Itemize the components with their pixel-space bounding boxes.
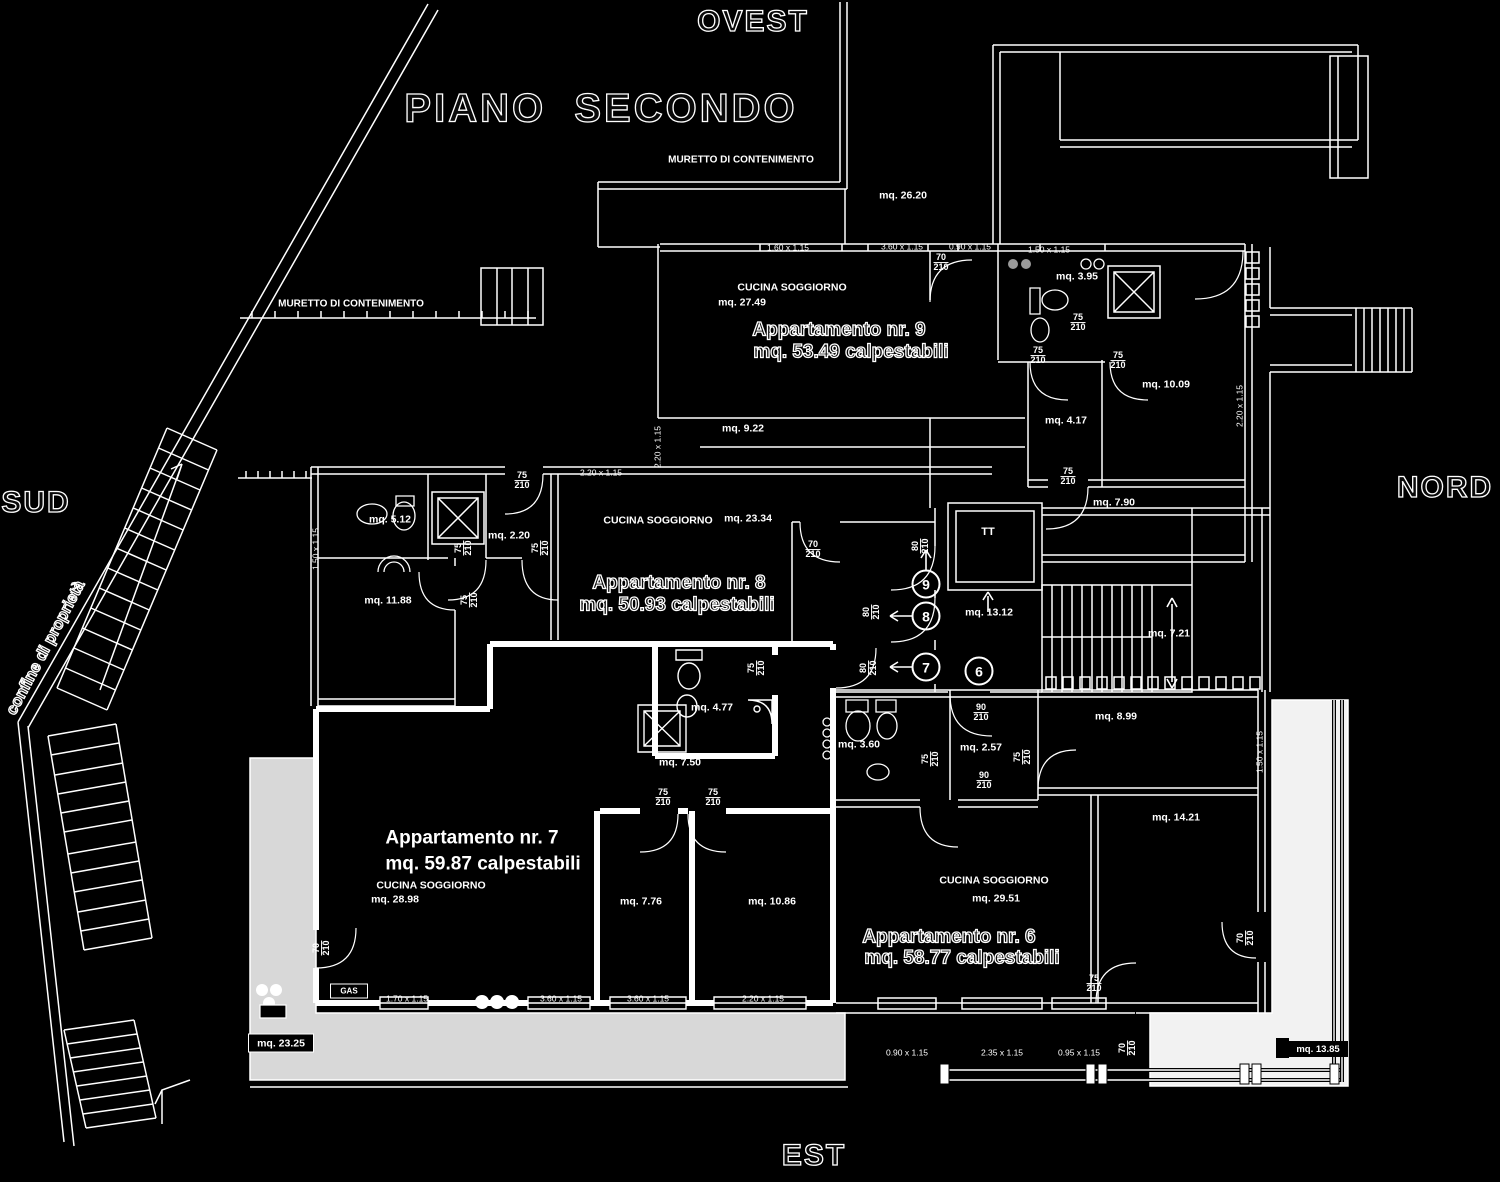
door-height: 210 (973, 714, 988, 723)
window-dimension: 0.90 x 1.15 (886, 1048, 928, 1057)
door-size-label: 75210 (705, 788, 720, 808)
door-size-label: 75210 (1013, 749, 1033, 764)
chip-mq-13-85: mq. 13.85 (1288, 1041, 1348, 1057)
label-mq-58-77-calpestabili: mq. 58.77 calpestabili (864, 949, 1059, 970)
label-mq-14-21: mq. 14.21 (1152, 812, 1200, 823)
window-dimension: 0.90 x 1.15 (949, 242, 991, 251)
door-size-label: 75210 (514, 471, 529, 491)
window-dimension: 2.20 x 1.15 (1235, 385, 1244, 427)
label-mq-4-17: mq. 4.17 (1045, 415, 1087, 426)
label-piano-secondo: PIANO SECONDO (404, 87, 797, 130)
window-dimension: 1.60 x 1.15 (767, 243, 809, 252)
unit-number-6: 6 (965, 657, 994, 686)
unit-number-8: 8 (912, 602, 941, 631)
label-mq-26-20: mq. 26.20 (879, 190, 927, 201)
door-size-label: 80210 (911, 538, 931, 553)
label-mq-9-22: mq. 9.22 (722, 423, 764, 434)
door-size-label: 70210 (312, 940, 332, 955)
door-height: 210 (542, 540, 551, 555)
label-mq-27-49: mq. 27.49 (718, 297, 766, 308)
label-mq-3-60: mq. 3.60 (838, 739, 880, 750)
door-height: 210 (1086, 985, 1101, 994)
window-dimension: 3.60 x 1.15 (627, 994, 669, 1003)
label-mq-7-21: mq. 7.21 (1148, 628, 1190, 639)
door-size-label: 75210 (454, 540, 474, 555)
label-mq-2-20: mq. 2.20 (488, 530, 530, 541)
unit-number-9: 9 (912, 570, 941, 599)
door-height: 210 (705, 799, 720, 808)
door-size-label: 75210 (655, 788, 670, 808)
label-mq-29-51: mq. 29.51 (972, 893, 1020, 904)
label-mq-10-09: mq. 10.09 (1142, 379, 1190, 390)
door-size-label: 75210 (1060, 467, 1075, 487)
label-nord: NORD (1397, 472, 1493, 504)
window-dimension: 2.20 x 1.15 (742, 994, 784, 1003)
chip-gas: GAS (330, 984, 368, 999)
door-size-label: 70210 (933, 253, 948, 273)
window-dimension: 2.20 x 1.15 (653, 426, 662, 468)
door-height: 210 (465, 540, 474, 555)
label-muretto-di-contenimento: MURETTO DI CONTENIMENTO (668, 156, 814, 167)
door-height: 210 (1030, 357, 1045, 366)
shaft-boxes (1108, 266, 1160, 318)
door-height: 210 (805, 551, 820, 560)
label-mq-28-98: mq. 28.98 (371, 894, 419, 905)
door-size-label: 75210 (1070, 313, 1085, 333)
door-size-label: 75210 (1086, 974, 1101, 994)
label-ovest: OVEST (697, 6, 809, 38)
door-height: 210 (323, 940, 332, 955)
door-height: 210 (932, 751, 941, 766)
chip-mq-23-25: mq. 23.25 (248, 1034, 314, 1053)
door-height: 210 (758, 660, 767, 675)
door-size-label: 75210 (747, 660, 767, 675)
door-height: 210 (1070, 324, 1085, 333)
label-mq-23-34: mq. 23.34 (724, 513, 772, 524)
label-cucina-soggiorno: CUCINA SOGGIORNO (376, 880, 485, 891)
door-size-label: 75210 (460, 592, 480, 607)
door-size-label: 70210 (805, 540, 820, 560)
label-est: EST (782, 1140, 846, 1172)
round-symbols (256, 259, 1289, 1058)
window-dimension: 3.60 x 1.15 (540, 994, 582, 1003)
door-height: 210 (870, 660, 879, 675)
door-height: 210 (514, 482, 529, 491)
door-size-label: 75210 (921, 751, 941, 766)
door-height: 210 (1060, 478, 1075, 487)
label-mq-10-86: mq. 10.86 (748, 896, 796, 907)
door-size-label: 70210 (1118, 1040, 1138, 1055)
door-size-label: 80210 (859, 660, 879, 675)
terrace-gray (250, 758, 848, 1087)
door-height: 210 (1024, 749, 1033, 764)
label-mq-2-57: mq. 2.57 (960, 742, 1002, 753)
unit-number-7: 7 (912, 653, 941, 682)
stair-core (836, 503, 1270, 692)
label-mq-7-50: mq. 7.50 (659, 757, 701, 768)
label-cucina-soggiorno: CUCINA SOGGIORNO (939, 875, 1048, 886)
label-cucina-soggiorno: CUCINA SOGGIORNO (603, 515, 712, 526)
window-dimension: 2.20 x 1.15 (580, 468, 622, 477)
window-dimension: 0.95 x 1.15 (1058, 1048, 1100, 1057)
label-appartamento-nr-8: Appartamento nr. 8 (592, 574, 765, 595)
door-size-label: 75210 (1110, 351, 1125, 371)
window-dimension: 1.50 x 1.15 (1028, 245, 1070, 254)
door-size-label: 70210 (1236, 930, 1256, 945)
label-mq-50-93-calpestabili: mq. 50.93 calpestabili (579, 596, 774, 617)
door-size-label: 90210 (976, 771, 991, 791)
door-height: 210 (976, 782, 991, 791)
window-dimension: 3.60 x 1.15 (881, 242, 923, 251)
label-mq-3-95: mq. 3.95 (1056, 271, 1098, 282)
window-dimension: 1.50 x 1.15 (1255, 731, 1264, 773)
door-height: 210 (1247, 930, 1256, 945)
label-mq-7-90: mq. 7.90 (1093, 497, 1135, 508)
window-dimension: 1.70 x 1.15 (386, 994, 428, 1003)
label-sud: SUD (1, 487, 70, 519)
door-size-label: 80210 (862, 604, 882, 619)
door-height: 210 (933, 264, 948, 273)
door-height: 210 (655, 799, 670, 808)
terrace-light (1150, 700, 1348, 1086)
label-cucina-soggiorno: CUCINA SOGGIORNO (737, 282, 846, 293)
label-mq-59-87-calpestabili: mq. 59.87 calpestabili (385, 855, 580, 876)
label-mq-13-12: mq. 13.12 (965, 607, 1013, 618)
label-mq-8-99: mq. 8.99 (1095, 711, 1137, 722)
door-size-label: 90210 (973, 703, 988, 723)
north-stairs (1270, 308, 1412, 372)
label-mq-53-49-calpestabili: mq. 53.49 calpestabili (753, 343, 948, 364)
label-muretto-di-contenimento: MURETTO DI CONTENIMENTO (278, 300, 424, 311)
door-height: 210 (1129, 1040, 1138, 1055)
door-size-label: 75210 (531, 540, 551, 555)
window-dimension: 1.50 x 1.15 (311, 528, 320, 570)
label-appartamento-nr-6: Appartamento nr. 6 (862, 928, 1035, 949)
label-mq-5-12: mq. 5.12 (369, 514, 411, 525)
label-appartamento-nr-9: Appartamento nr. 9 (752, 321, 925, 342)
label-tt: TT (981, 527, 994, 539)
label-mq-4-77: mq. 4.77 (691, 702, 733, 713)
label-mq-11-88: mq. 11.88 (364, 595, 411, 606)
door-height: 210 (471, 592, 480, 607)
label-mq-7-76: mq. 7.76 (620, 896, 662, 907)
floor-plan: OVESTPIANO SECONDOSUDNORDESTconfine di p… (0, 0, 1500, 1182)
apartment-7-walls (316, 644, 833, 1003)
door-height: 210 (873, 604, 882, 619)
label-appartamento-nr-7: Appartamento nr. 7 (385, 829, 558, 850)
door-height: 210 (922, 538, 931, 553)
door-size-label: 75210 (1030, 346, 1045, 366)
door-height: 210 (1110, 362, 1125, 371)
window-dimension: 2.35 x 1.15 (981, 1048, 1023, 1057)
